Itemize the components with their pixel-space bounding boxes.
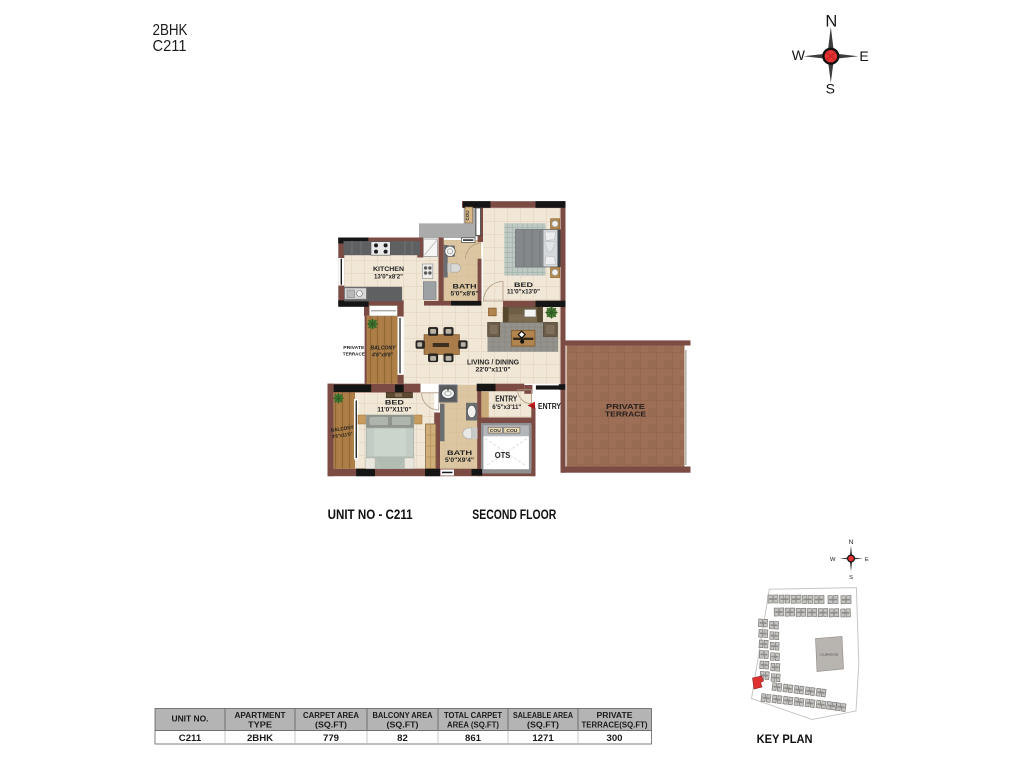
svg-text:N: N	[825, 13, 837, 31]
svg-text:82: 82	[397, 733, 408, 744]
svg-text:22'0"x11'0": 22'0"x11'0"	[476, 366, 511, 373]
svg-text:E: E	[859, 48, 868, 64]
svg-text:(SQ.FT): (SQ.FT)	[527, 720, 559, 730]
svg-text:KEY PLAN: KEY PLAN	[757, 732, 813, 746]
svg-text:N: N	[849, 539, 854, 546]
svg-text:PRIVATE: PRIVATE	[606, 404, 645, 411]
svg-text:APARTMENT: APARTMENT	[235, 710, 287, 720]
svg-text:SALEABLE AREA: SALEABLE AREA	[513, 710, 573, 720]
svg-text:COU: COU	[465, 210, 470, 221]
svg-text:C211: C211	[153, 38, 187, 55]
svg-text:6'5"x3'11": 6'5"x3'11"	[492, 404, 521, 411]
svg-text:SECOND FLOOR: SECOND FLOOR	[472, 507, 556, 523]
svg-text:S: S	[826, 81, 835, 97]
svg-text:CLUBHOUSE: CLUBHOUSE	[820, 653, 839, 657]
svg-text:5'0"X9'4": 5'0"X9'4"	[445, 457, 474, 464]
svg-text:11'0"X11'0": 11'0"X11'0"	[377, 406, 411, 413]
svg-text:CARPET AREA: CARPET AREA	[303, 710, 359, 720]
svg-text:TYPE: TYPE	[248, 720, 272, 730]
svg-text:KITCHEN: KITCHEN	[373, 266, 404, 273]
svg-text:COU: COU	[490, 428, 502, 433]
svg-text:LIVING / DINING: LIVING / DINING	[467, 359, 520, 366]
svg-text:TERRACE: TERRACE	[343, 352, 366, 358]
svg-text:(SQ.FT): (SQ.FT)	[387, 720, 419, 730]
svg-text:BALCONY AREA: BALCONY AREA	[373, 710, 433, 720]
svg-text:UNIT NO.: UNIT NO.	[172, 714, 209, 724]
svg-text:PRIVATE: PRIVATE	[343, 345, 365, 351]
svg-text:779: 779	[323, 733, 339, 744]
svg-text:E: E	[865, 557, 869, 563]
svg-text:COU: COU	[506, 428, 518, 433]
svg-text:C211: C211	[179, 733, 202, 744]
svg-text:TERRACE: TERRACE	[605, 411, 646, 418]
svg-text:11'0"x13'0": 11'0"x13'0"	[507, 289, 540, 296]
svg-text:BATH: BATH	[453, 284, 477, 291]
svg-text:13'0"x8'2": 13'0"x8'2"	[374, 273, 403, 280]
svg-text:(SQ.FT): (SQ.FT)	[315, 720, 347, 730]
svg-text:861: 861	[465, 733, 482, 744]
svg-text:PRIVATE: PRIVATE	[597, 710, 633, 720]
svg-text:BATH: BATH	[447, 450, 472, 457]
svg-text:4'6"x9'8": 4'6"x9'8"	[371, 352, 393, 358]
svg-text:BALCONY: BALCONY	[371, 346, 397, 352]
svg-text:300: 300	[606, 733, 622, 744]
svg-text:OTS: OTS	[495, 451, 511, 460]
svg-text:ENTRY: ENTRY	[495, 395, 518, 404]
svg-text:AREA (SQ.FT): AREA (SQ.FT)	[447, 720, 499, 730]
svg-text:ENTRY: ENTRY	[538, 402, 562, 411]
svg-text:W: W	[830, 557, 836, 563]
svg-text:UNIT NO - C211: UNIT NO - C211	[328, 507, 413, 523]
svg-text:1271: 1271	[532, 733, 554, 744]
svg-text:TOTAL CARPET: TOTAL CARPET	[444, 710, 503, 720]
svg-text:5'0"x8'6": 5'0"x8'6"	[451, 291, 479, 298]
svg-text:S: S	[849, 575, 853, 581]
svg-text:W: W	[792, 47, 806, 63]
svg-text:2BHK: 2BHK	[153, 22, 189, 39]
svg-text:2BHK: 2BHK	[247, 733, 273, 744]
svg-text:TERRACE(SQ.FT): TERRACE(SQ.FT)	[582, 720, 648, 730]
